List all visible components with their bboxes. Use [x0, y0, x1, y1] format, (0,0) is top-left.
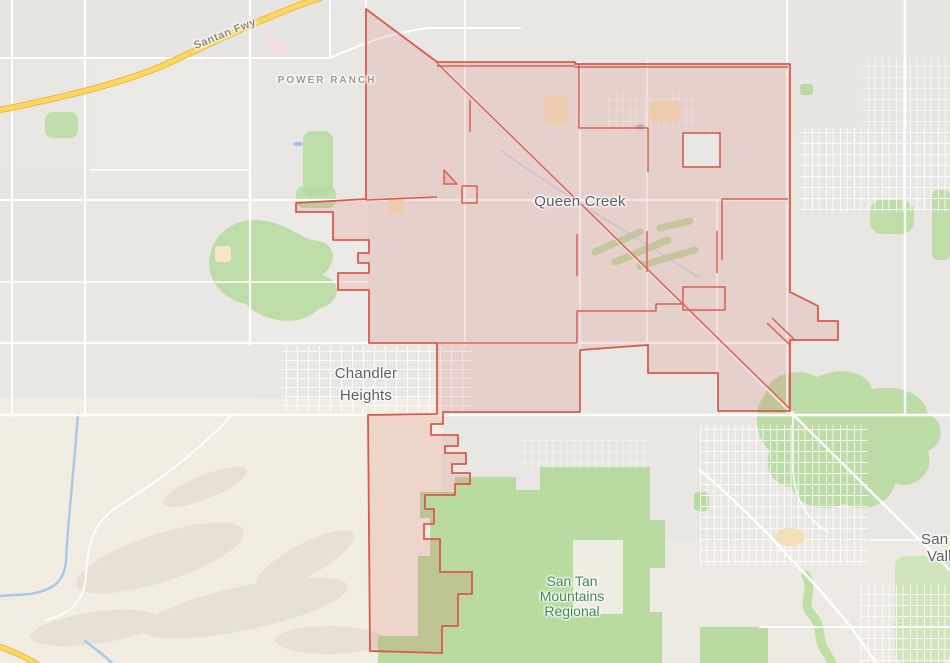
- map-canvas: [0, 0, 950, 663]
- boundary-enclave: [683, 133, 720, 167]
- map-container[interactable]: Santan Fwy POWER RANCH Queen Creek Chand…: [0, 0, 950, 663]
